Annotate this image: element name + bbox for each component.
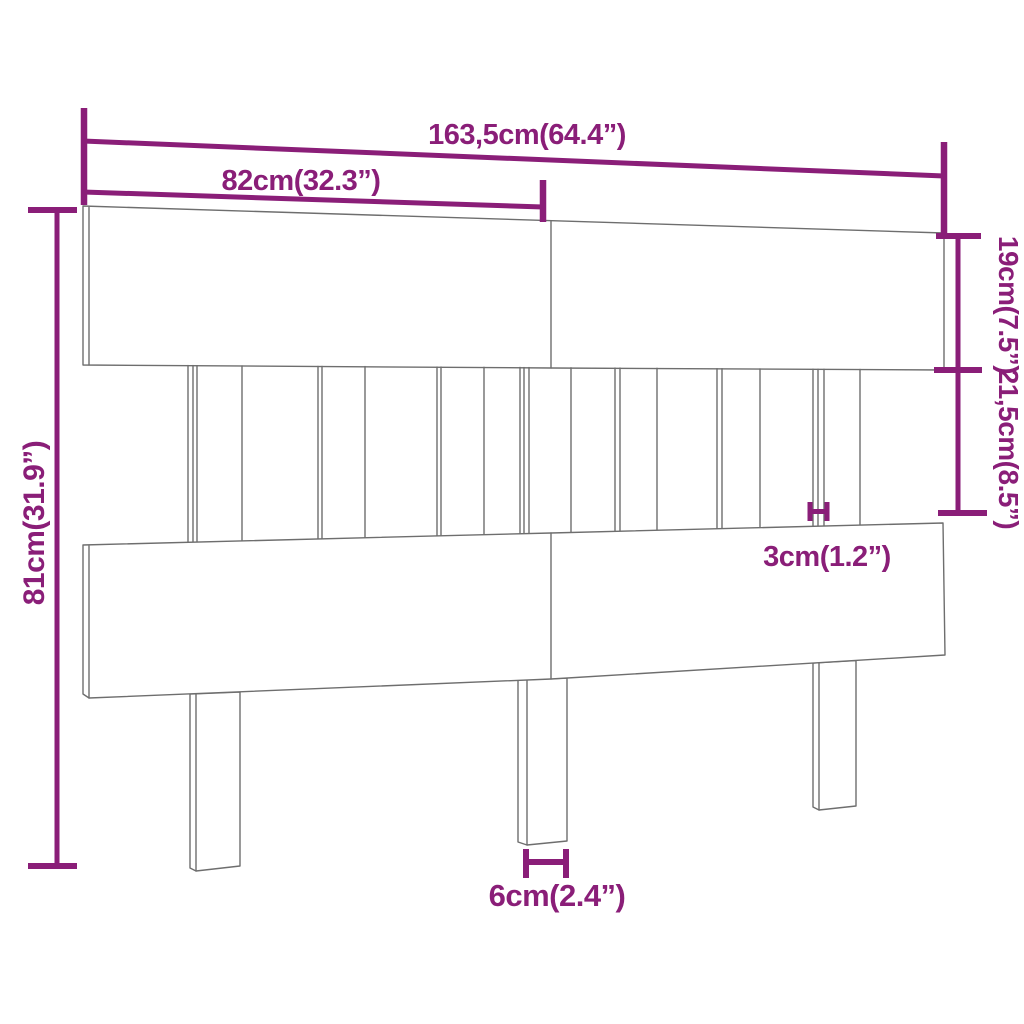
half-width-label: 82cm(32.3”) (222, 165, 381, 197)
slats (188, 366, 860, 543)
top-rail (83, 206, 944, 370)
slat-gap-label: 3cm(1.2”) (763, 541, 891, 573)
legs (190, 661, 856, 872)
headboard-dimension-diagram: 163,5cm(64.4”) 82cm(32.3”) 19cm(7.5”) 21… (0, 0, 1024, 1024)
top-rail-height-label: 19cm(7.5”) (993, 236, 1024, 374)
leg-width-dimension (526, 849, 566, 878)
leg-width-label: 6cm(2.4”) (489, 878, 626, 913)
left-leg (190, 692, 240, 871)
overall-width-label: 163,5cm(64.4”) (428, 119, 626, 151)
diagram-canvas: 163,5cm(64.4”) 82cm(32.3”) 19cm(7.5”) 21… (0, 0, 1024, 1024)
overall-height-label: 81cm(31.9”) (18, 441, 51, 606)
center-leg (518, 678, 567, 845)
middle-section-height-label: 21,5cm(8.5”) (993, 369, 1024, 530)
headboard-drawing (83, 206, 945, 871)
